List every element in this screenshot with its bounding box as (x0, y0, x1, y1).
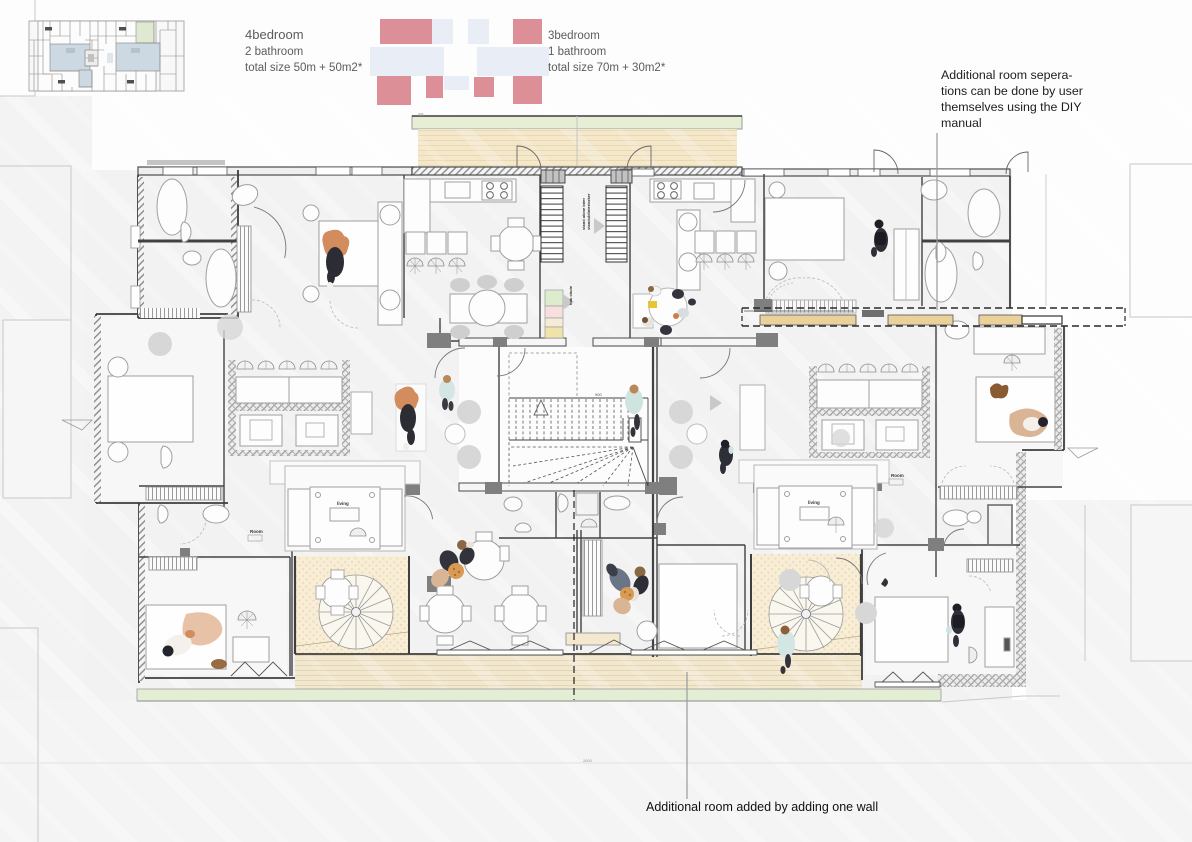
svg-text:Room: Room (250, 529, 263, 534)
svg-text:aa: aa (418, 112, 424, 118)
svg-text:2600: 2600 (583, 758, 593, 763)
svg-text:trak chute: trak chute (568, 285, 573, 305)
svg-text:4bedroom: 4bedroom (245, 27, 304, 42)
svg-text:total size 70m + 30m2*: total size 70m + 30m2* (548, 62, 666, 74)
svg-text:total size 50m + 50m2*: total size 50m + 50m2* (245, 62, 363, 74)
svg-text:900: 900 (595, 392, 602, 397)
svg-text:living: living (337, 501, 349, 506)
svg-text:standublinteriorker: standublinteriorker (586, 193, 591, 230)
svg-text:living: living (808, 500, 820, 505)
svg-text:1 bathroom: 1 bathroom (548, 46, 606, 58)
svg-text:themselves using the DIY: themselves using the DIY (941, 100, 1082, 114)
svg-text:Additional room sepera-: Additional room sepera- (941, 68, 1073, 82)
svg-text:3bedroom: 3bedroom (548, 30, 600, 42)
svg-text:2 bathroom: 2 bathroom (245, 46, 303, 58)
svg-text:manual: manual (941, 116, 982, 130)
svg-text:Room: Room (891, 473, 904, 478)
svg-text:Additional room added by addi: Additional room added by adding one wall (646, 800, 878, 814)
svg-text:tions can be done by user: tions can be done by user (941, 84, 1083, 98)
